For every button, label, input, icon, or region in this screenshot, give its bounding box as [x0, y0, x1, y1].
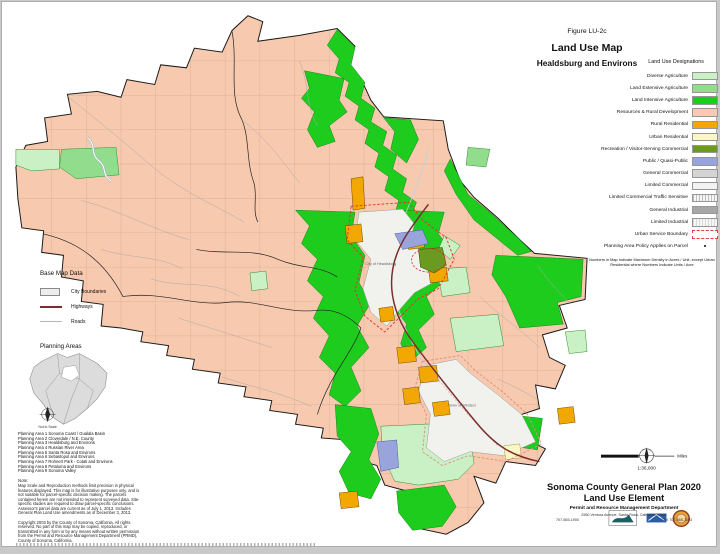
legend-label: Planning Area Policy Applies on Parcel	[604, 244, 688, 249]
notes-panel: Note: Map Scale and Reproduction methods…	[18, 478, 142, 543]
legend-item: Rural Residential	[558, 119, 718, 131]
address-line: 2550 Ventura Avenue, Santa Rosa, Califor…	[530, 513, 718, 517]
legend-swatch	[692, 157, 718, 166]
legend-label: Recreation / Visitor-Serving Commercial	[601, 147, 688, 152]
legend-item: Recreation / Visitor-Serving Commercial	[558, 143, 718, 155]
legend-label: Land Extensive Agriculture	[630, 86, 688, 91]
legend-label: Diverse Agriculture	[647, 74, 688, 79]
healdsburg-label: City of Healdsburg	[365, 262, 396, 266]
legend-label: Limited Commercial Traffic Sensitive	[609, 195, 688, 200]
map-title: Land Use Map	[502, 42, 672, 54]
basemap-list: City BoundariesHighwaysRoads	[40, 284, 170, 329]
box-symbol	[40, 288, 64, 296]
planning-areas-list: Planning Area 1 Sonoma Coast / Gualala B…	[18, 432, 168, 474]
basemap-header: Base Map Data	[40, 270, 170, 277]
legend-swatch	[692, 145, 718, 154]
legend-item: Urban Service Boundary	[558, 228, 718, 240]
inset-county-map	[30, 354, 107, 425]
legend-label: Public / Quasi-Public	[643, 159, 688, 164]
legend-label: Limited Industrial	[651, 220, 688, 225]
legend-swatch	[692, 206, 718, 215]
basemap-label: Highways	[71, 304, 93, 310]
legend-item: Land Extensive Agriculture	[558, 82, 718, 94]
windsor-label: Town of Windsor	[448, 404, 476, 408]
basemap-label: City Boundaries	[71, 289, 106, 295]
legend-panel: Land Use Designations Diverse Agricultur…	[558, 59, 718, 267]
basemap-item: Highways	[40, 299, 170, 314]
plan-subtitle: Land Use Element	[530, 493, 718, 503]
legend-item: Limited Commercial	[558, 180, 718, 192]
scale-units-label: Miles	[677, 454, 687, 459]
legend-label: Land Intensive Agriculture	[632, 98, 688, 103]
phone-number: 707-565-1900	[556, 518, 579, 522]
legend-label: Rural Residential	[651, 122, 688, 127]
note-body: Map Scale and Reproduction methods limit…	[18, 484, 142, 516]
basemap-panel: Base Map Data City BoundariesHighwaysRoa…	[40, 270, 170, 329]
legend-swatch	[692, 121, 718, 130]
copyright-text: Copyright 2003 by the County of Sonoma, …	[18, 521, 142, 544]
legend-item: Limited Industrial	[558, 216, 718, 228]
legend-item: General Commercial	[558, 168, 718, 180]
planning-areas-header: Planning Areas	[40, 343, 82, 350]
department-name: Permit and Resource Management Departmen…	[530, 506, 718, 511]
legend-label: Urban Service Boundary	[635, 232, 688, 237]
legend-label: Resources & Rural Development	[617, 110, 688, 115]
legend-item: Resources & Rural Development	[558, 107, 718, 119]
legend-label: Limited Commercial	[645, 183, 688, 188]
thin-line-symbol	[40, 321, 64, 322]
planning-area-list-item: Planning Area 9 Sonoma Valley	[18, 469, 168, 474]
phone-line: 707-565-1900 FAX 707-565-1103	[530, 518, 718, 522]
basemap-item: City Boundaries	[40, 284, 170, 299]
legend-item: Land Intensive Agriculture	[558, 94, 718, 106]
map-sheet: City of Healdsburg Town of Windsor Not t…	[1, 1, 717, 547]
legend-swatch	[692, 242, 718, 251]
legend-item: Urban Residential	[558, 131, 718, 143]
basemap-label: Roads	[71, 319, 85, 325]
legend-item: Diverse Agriculture	[558, 70, 718, 82]
legend-swatch	[692, 230, 718, 239]
legend-label: General Commercial	[643, 171, 688, 176]
legend-item: Public / Quasi-Public	[558, 155, 718, 167]
legend-swatch	[692, 108, 718, 117]
legend-swatch	[692, 194, 718, 203]
legend-item: General Industrial	[558, 204, 718, 216]
legend-label: Urban Residential	[649, 135, 688, 140]
legend-swatch	[692, 133, 718, 142]
legend-item: Limited Commercial Traffic Sensitive	[558, 192, 718, 204]
legend-label: General Industrial	[649, 208, 688, 213]
legend-swatch	[692, 84, 718, 93]
scale-bar	[601, 447, 674, 464]
legend-list: Diverse AgricultureLand Extensive Agricu…	[558, 70, 718, 253]
legend-header: Land Use Designations	[558, 59, 718, 65]
legend-item: Planning Area Policy Applies on Parcel	[558, 241, 718, 253]
map-sheet-stage: City of Healdsburg Town of Windsor Not t…	[0, 0, 720, 554]
inset-scale-note: Not to Scale	[38, 425, 56, 429]
basemap-item: Roads	[40, 314, 170, 329]
thick-line-symbol	[40, 306, 64, 308]
legend-swatch	[692, 169, 718, 178]
plan-title: Sonoma County General Plan 2020	[530, 482, 718, 492]
legend-swatch	[692, 96, 718, 105]
scale-ratio-label: 1:36,000	[637, 465, 656, 471]
legend-swatch	[692, 182, 718, 191]
figure-label: Figure LU-2c	[502, 28, 672, 35]
fax-number: FAX 707-565-1103	[661, 518, 692, 522]
legend-swatch	[692, 218, 718, 227]
urban-residential-parcels	[504, 444, 522, 460]
legend-note: Numbers in Map Indicate Maximum Density …	[588, 257, 716, 267]
legend-swatch	[692, 72, 718, 81]
credits-panel: Sonoma County General Plan 2020 Land Use…	[530, 482, 718, 522]
footer-microtext	[16, 543, 316, 546]
